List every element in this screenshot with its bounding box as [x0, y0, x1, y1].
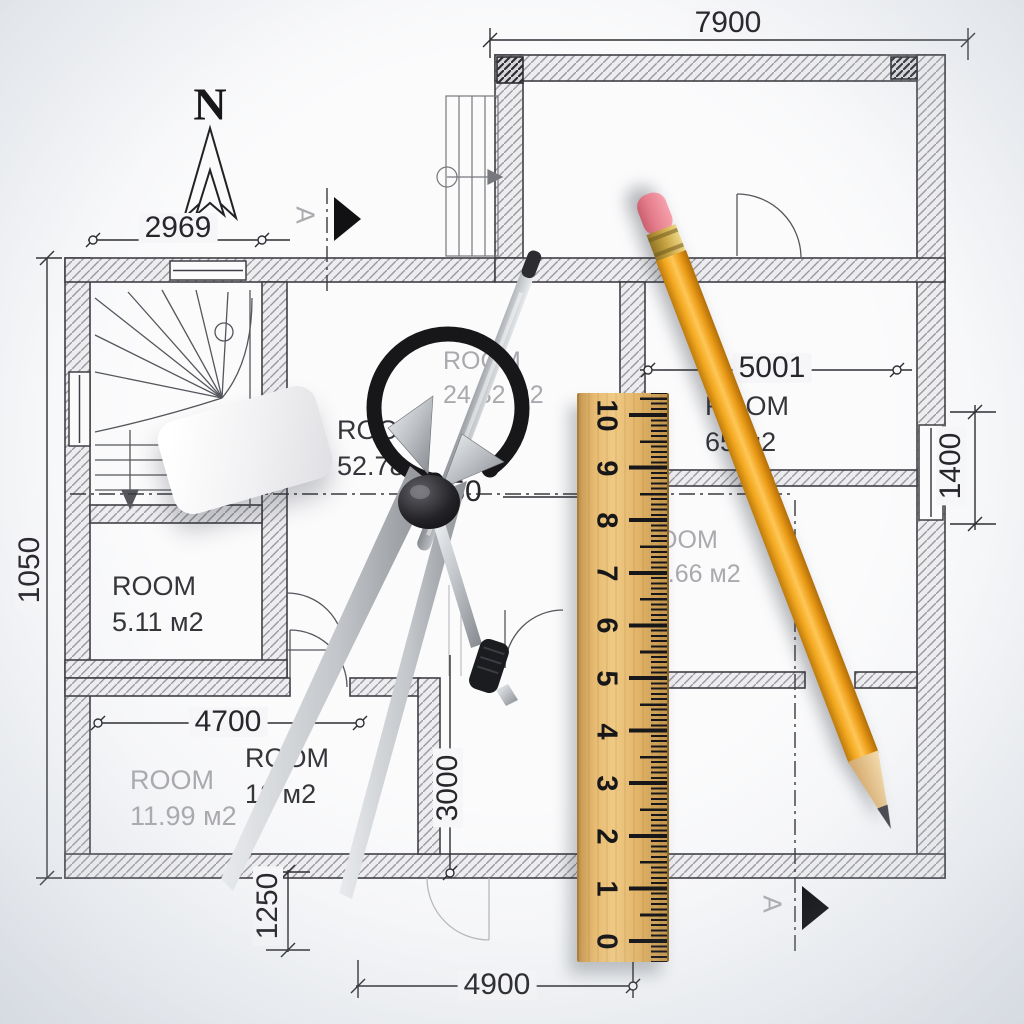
ruler-number: 4	[590, 715, 623, 749]
ruler-number: 8	[590, 504, 623, 538]
ruler-number: 10	[590, 399, 623, 433]
room-label-hall: ROOM 52.78	[337, 412, 421, 485]
dim-3000: 3000	[433, 749, 463, 828]
dim-5001: 5001	[733, 353, 812, 383]
dim-1250: 1250	[253, 867, 283, 946]
room-name: ROOM	[112, 568, 204, 604]
dim-1050: 1050	[15, 531, 45, 610]
room-name: ROOM	[337, 412, 421, 448]
room-area: 52.78	[337, 448, 421, 484]
dim-partial-50: 50	[442, 477, 487, 507]
ruler-number: 0	[590, 925, 623, 959]
room-area: 24.82 м2	[443, 379, 544, 413]
ruler-number: 2	[590, 820, 623, 854]
room-label-small-left: ROOM 5.11 м2	[112, 568, 204, 641]
ruler: 10 9 8 7 6 5 4 3 2 1 0	[577, 393, 669, 962]
ruler-number: 5	[590, 662, 623, 696]
north-arrow-icon	[184, 128, 236, 218]
entry-steps	[437, 96, 502, 256]
room-label-upper-center: ROOM 24.82 м2	[443, 345, 544, 413]
north-label: N	[193, 78, 226, 131]
room-label-bottom-left: ROOM 11.99 м2	[130, 762, 237, 835]
section-marker-a-bottom: A	[757, 895, 788, 912]
floor-plan-drawing	[0, 0, 1024, 1024]
section-marker-a-top: A	[290, 206, 321, 223]
room-area: 65 м2	[705, 424, 789, 460]
ruler-major-ticks	[629, 393, 667, 962]
room-area: 5.11 м2	[112, 604, 204, 640]
dim-1400: 1400	[936, 427, 966, 506]
room-area: 11.99 м2	[130, 798, 237, 834]
room-label-right-top: ROOM 65 м2	[705, 388, 789, 461]
dim-top-7900: 7900	[689, 8, 768, 38]
dim-4700: 4700	[189, 707, 268, 737]
ruler-number: 7	[590, 557, 623, 591]
blueprint-scene: N A A 7900 2969 5001 1400 1050 4700 3000…	[0, 0, 1024, 1024]
ruler-number: 6	[590, 609, 623, 643]
dim-4900: 4900	[458, 970, 537, 1000]
room-name: ROOM	[245, 740, 329, 776]
room-label-bottom-center: ROOM 12 м2	[245, 740, 329, 813]
room-name: ROOM	[705, 388, 789, 424]
room-name: ROOM	[130, 762, 237, 798]
room-name: ROOM	[443, 345, 544, 379]
ruler-number: 1	[590, 872, 623, 906]
dim-2969: 2969	[139, 213, 218, 243]
room-area: 12 м2	[245, 776, 329, 812]
ruler-number: 3	[590, 767, 623, 801]
ruler-number: 9	[590, 452, 623, 486]
